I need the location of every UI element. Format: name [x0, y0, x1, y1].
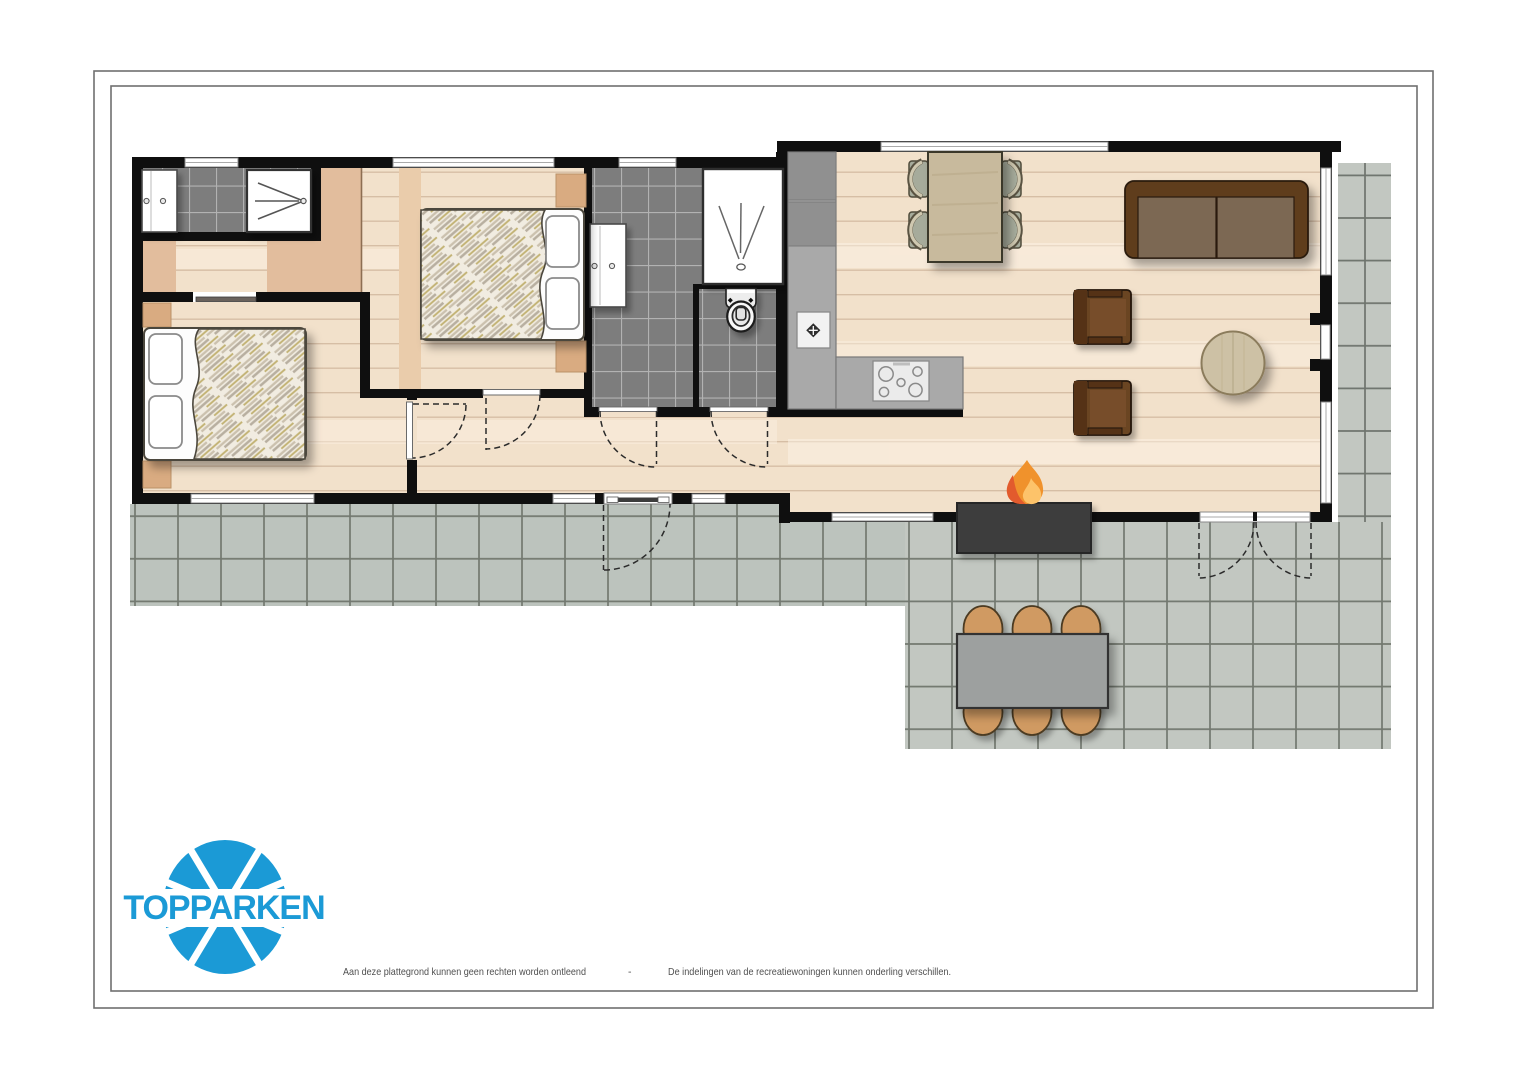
svg-text:De indelingen van de recreatie: De indelingen van de recreatiewoningen k… — [668, 966, 951, 978]
svg-text:-: - — [628, 966, 632, 978]
svg-text:TOPPARKEN: TOPPARKEN — [123, 889, 324, 927]
svg-text:Aan deze plattegrond kunnen ge: Aan deze plattegrond kunnen geen rechten… — [343, 966, 586, 978]
